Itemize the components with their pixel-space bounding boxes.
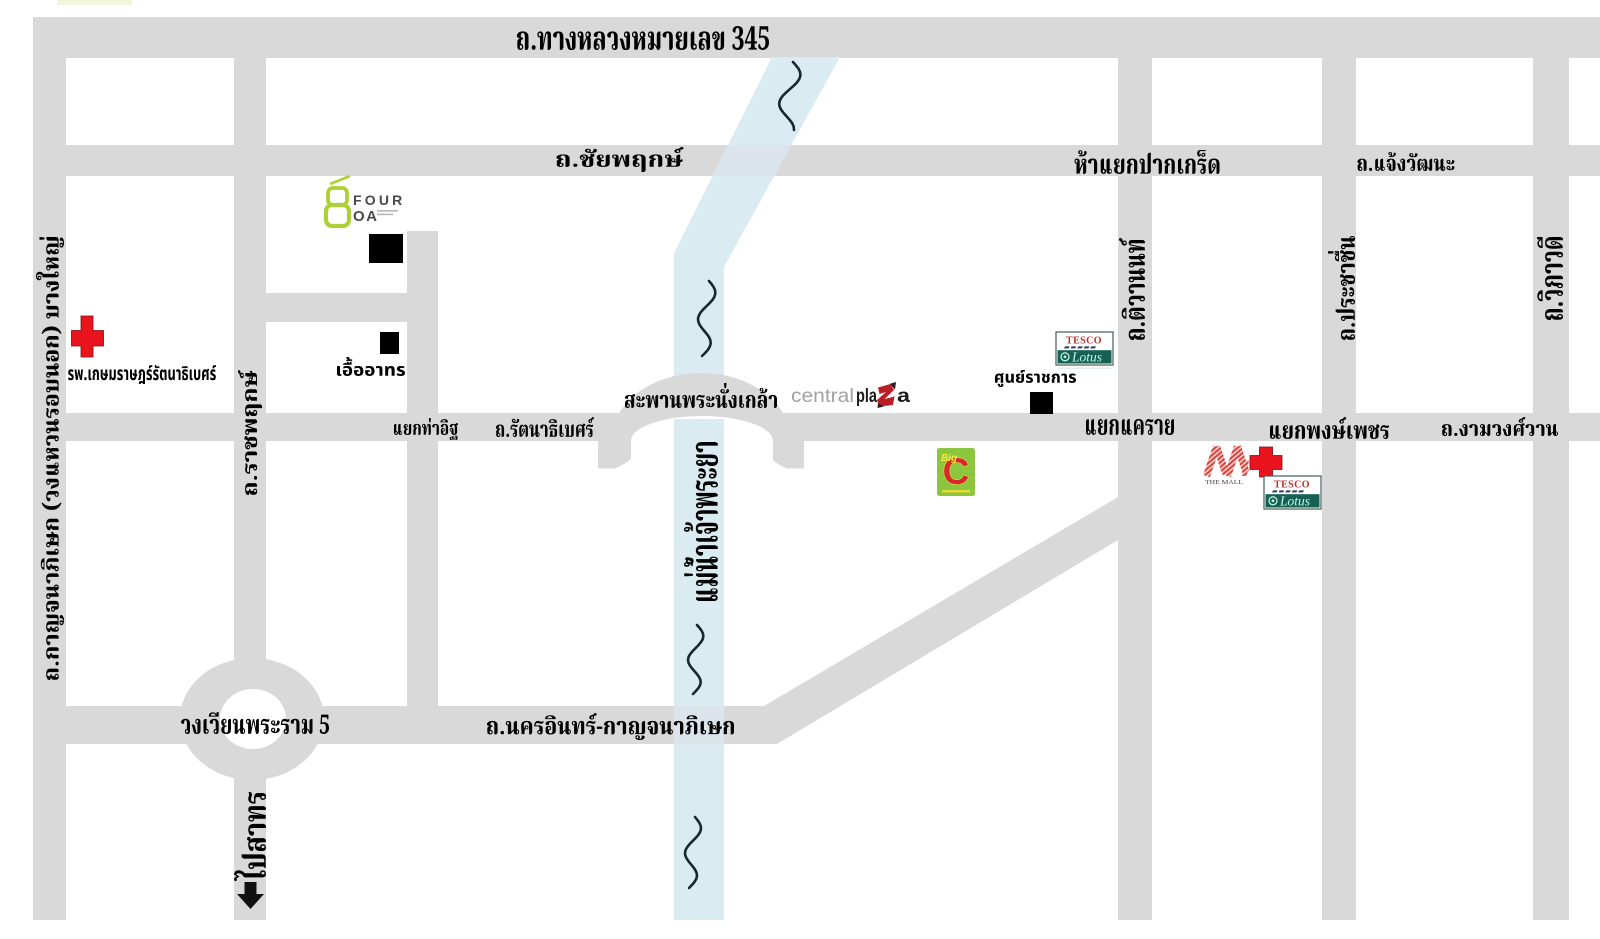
svg-text:Big: Big (941, 453, 957, 464)
svg-text:FOUR: FOUR (353, 192, 405, 208)
svg-text:a: a (897, 386, 911, 407)
svg-text:THE MALL: THE MALL (1205, 479, 1243, 486)
svg-text:OA: OA (353, 208, 379, 225)
svg-text:pla: pla (856, 386, 877, 407)
svg-text:central: central (791, 386, 854, 407)
